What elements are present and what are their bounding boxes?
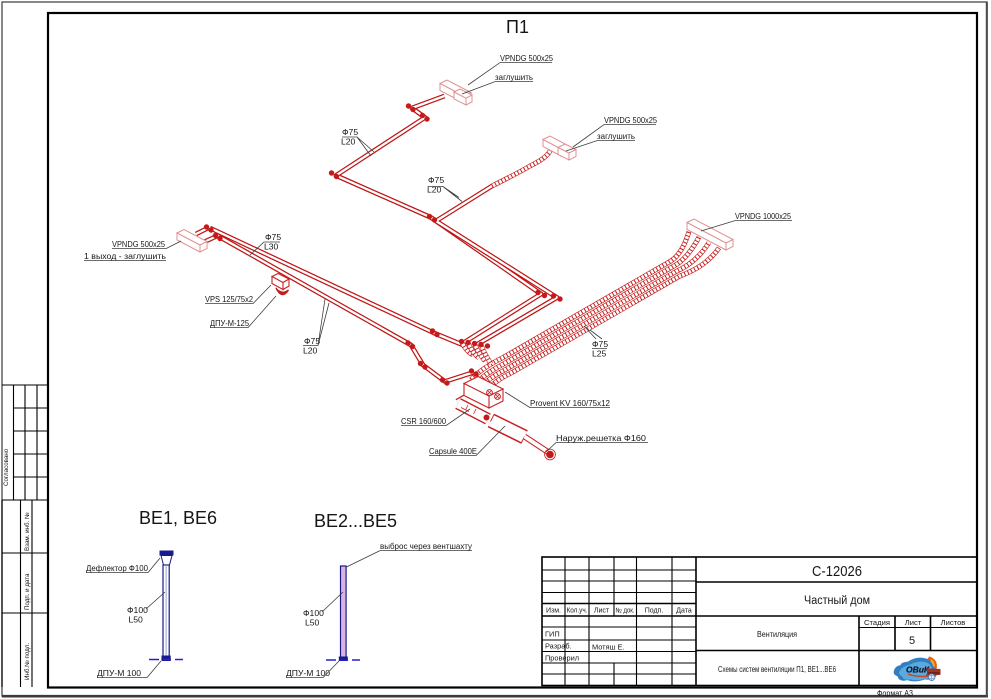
svg-text:Схемы систем вентиляции П1, ВЕ: Схемы систем вентиляции П1, ВЕ1...ВЕ6: [718, 665, 836, 674]
svg-text:L50: L50: [129, 615, 144, 625]
svg-text:Разраб.: Разраб.: [545, 642, 572, 651]
svg-text:VPNDG 500x25: VPNDG 500x25: [500, 53, 553, 63]
svg-text:Наруж.решетка Ф160: Наруж.решетка Ф160: [556, 433, 646, 443]
svg-text:Ф100: Ф100: [303, 608, 324, 618]
svg-text:Проверил: Проверил: [545, 654, 579, 663]
svg-text:Ф75: Ф75: [428, 175, 444, 185]
svg-text:Ф75: Ф75: [342, 127, 358, 137]
svg-text:ОВиК: ОВиК: [906, 665, 930, 675]
svg-text:Инб.№ подл.: Инб.№ подл.: [24, 643, 31, 680]
svg-text:1 выход - заглушить: 1 выход - заглушить: [84, 251, 167, 261]
svg-text:Мотяш Е.: Мотяш Е.: [592, 643, 625, 652]
svg-text:VPNDG 1000x25: VPNDG 1000x25: [735, 211, 791, 221]
svg-text:Подп.: Подп.: [645, 608, 664, 615]
svg-text:Дефлектор Ф100: Дефлектор Ф100: [86, 563, 148, 573]
svg-text:Подп. и дата: Подп. и дата: [24, 573, 31, 610]
svg-text:VPNDG 500x25: VPNDG 500x25: [112, 239, 165, 249]
svg-text:L20: L20: [303, 346, 318, 356]
svg-text:VPS 125/75x2: VPS 125/75x2: [205, 294, 253, 304]
svg-text:№ док.: № док.: [616, 608, 635, 615]
svg-text:ВЕ2...ВЕ5: ВЕ2...ВЕ5: [314, 511, 397, 531]
svg-text:Ф100: Ф100: [127, 605, 148, 615]
svg-text:С-12026: С-12026: [812, 564, 862, 580]
svg-text:L30: L30: [264, 242, 279, 252]
svg-text:Формат А3: Формат А3: [877, 689, 913, 698]
svg-text:Лист: Лист: [905, 618, 922, 627]
svg-text:L25: L25: [592, 349, 607, 359]
svg-text:заглушить: заглушить: [495, 72, 533, 82]
svg-text:Provent KV 160/75x12: Provent KV 160/75x12: [530, 398, 610, 408]
svg-text:Вентиляция: Вентиляция: [757, 629, 797, 639]
svg-text:L20: L20: [427, 185, 442, 195]
svg-text:L50: L50: [305, 618, 320, 628]
svg-text:заглушить: заглушить: [597, 131, 635, 141]
svg-text:Дата: Дата: [676, 608, 692, 615]
svg-text:VPNDG 500x25: VPNDG 500x25: [604, 115, 657, 125]
svg-text:Capsule 400E: Capsule 400E: [429, 446, 477, 456]
svg-text:П1: П1: [506, 17, 529, 37]
svg-text:Ф75: Ф75: [265, 232, 281, 242]
svg-text:Согласовано: Согласовано: [3, 448, 10, 486]
svg-text:ДПУ-М-125: ДПУ-М-125: [210, 318, 249, 328]
svg-text:Листов: Листов: [941, 618, 966, 627]
svg-text:Стадия: Стадия: [864, 618, 890, 627]
svg-text:CSR 160/600: CSR 160/600: [401, 416, 446, 426]
svg-text:Кол.уч.: Кол.уч.: [567, 608, 588, 615]
svg-text:ВЕ1, ВЕ6: ВЕ1, ВЕ6: [139, 508, 217, 528]
svg-text:ГИП: ГИП: [545, 630, 560, 639]
svg-text:5: 5: [909, 635, 915, 647]
svg-text:L20: L20: [341, 137, 356, 147]
svg-text:ДПУ-М 100: ДПУ-М 100: [97, 668, 141, 678]
svg-text:Взам. инб. №: Взам. инб. №: [24, 512, 31, 551]
svg-text:выброс через вентшахту: выброс через вентшахту: [380, 541, 473, 551]
svg-text:Частный дом: Частный дом: [804, 595, 870, 607]
svg-text:Лист: Лист: [594, 608, 610, 615]
svg-text:Изм.: Изм.: [546, 608, 561, 615]
svg-text:Ф75: Ф75: [592, 339, 608, 349]
